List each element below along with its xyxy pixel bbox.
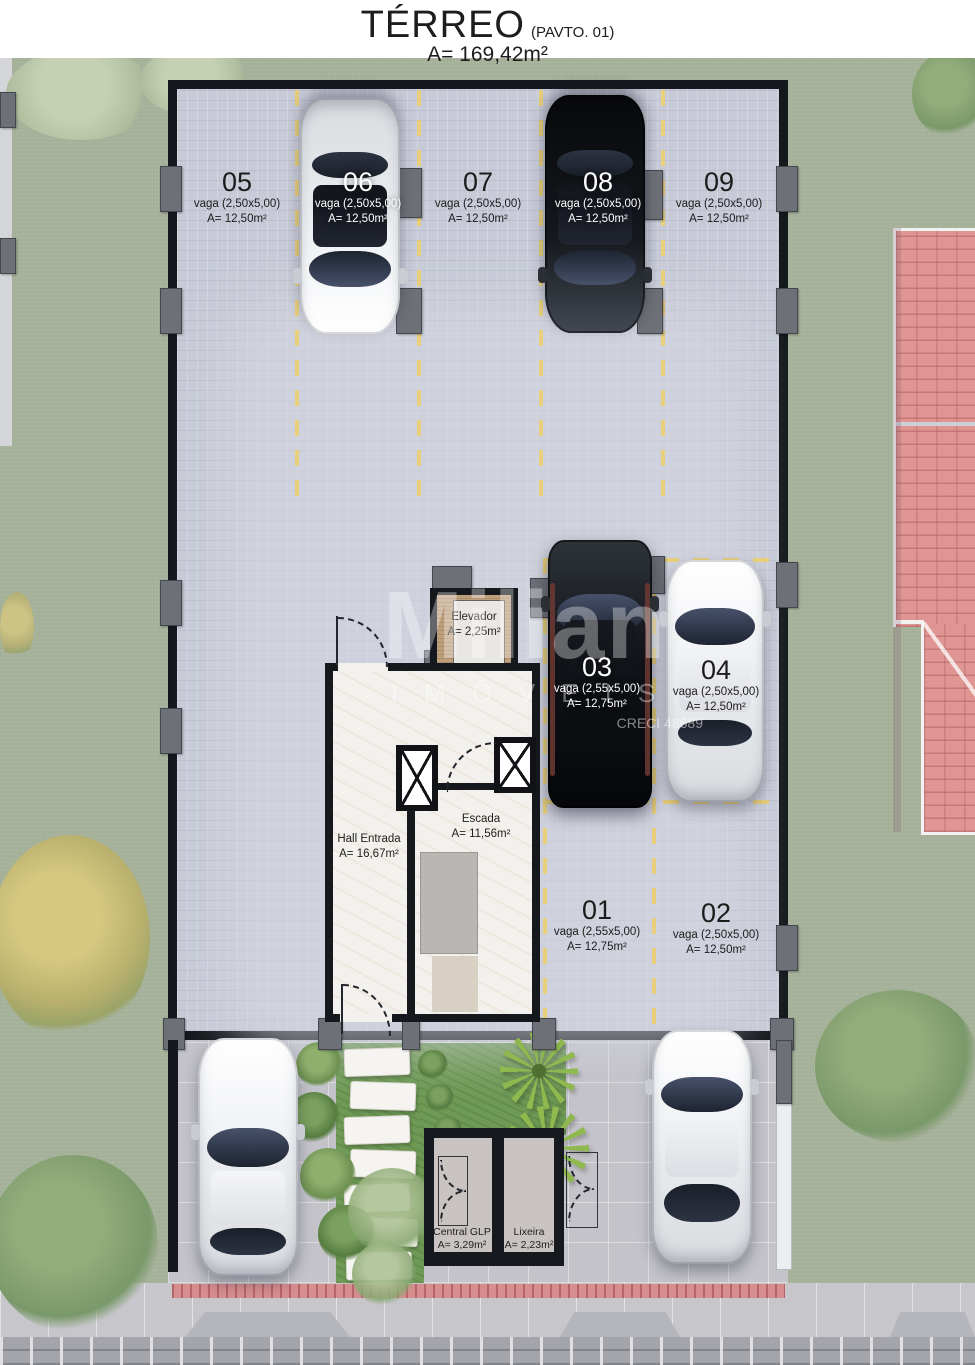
- parking-spot-label: 04 vaga (2,50x5,00) A= 12,50m²: [656, 655, 776, 715]
- car-mirror: [659, 611, 668, 627]
- room-name: Hall Entrada: [326, 832, 412, 847]
- curb-ramp: [560, 1312, 680, 1337]
- spot-area: A= 12,50m²: [538, 212, 658, 227]
- car-mirror: [541, 596, 550, 612]
- spot-dim: vaga (2,50x5,00): [538, 197, 658, 212]
- neighbor-roof-upper: [893, 228, 975, 627]
- lane-line: [295, 90, 299, 505]
- curb-ramp: [890, 1312, 975, 1337]
- x-line: [500, 743, 530, 787]
- spot-number: 02: [656, 898, 776, 928]
- spot-area: A= 12,50m²: [177, 212, 297, 227]
- lane-line: [539, 90, 543, 505]
- spot-area: A= 12,50m²: [659, 212, 779, 227]
- lixeira-label: Lixeira A= 2,23m²: [500, 1226, 558, 1252]
- garden-bush: [300, 1148, 356, 1204]
- stair-void: [420, 852, 478, 954]
- garden-bush: [426, 1084, 454, 1112]
- roof-eave-shadow: [893, 228, 901, 832]
- spot-dim: vaga (2,50x5,00): [298, 197, 418, 212]
- page-title: TÉRREO: [361, 4, 525, 46]
- hall-label: Hall Entrada A= 16,67m²: [326, 832, 412, 862]
- spot-number: 08: [538, 167, 658, 197]
- cobblestone-street: [0, 1337, 975, 1365]
- stepping-stone: [344, 1115, 411, 1145]
- garden-bush: [418, 1050, 448, 1080]
- room-area: A= 11,56m²: [438, 827, 524, 842]
- parking-spot-label: 06 vaga (2,50x5,00) A= 12,50m²: [298, 167, 418, 227]
- parking-spot-label: 03 vaga (2,55x5,00) A= 12,75m²: [545, 652, 649, 712]
- plan-header: TÉRREO(PAVTO. 01) A= 169,42m²: [0, 0, 975, 58]
- spot-dim: vaga (2,50x5,00): [656, 685, 776, 700]
- spot-area: A= 12,50m²: [656, 943, 776, 958]
- spot-dim: vaga (2,50x5,00): [418, 197, 538, 212]
- car-mirror: [293, 268, 302, 284]
- roof-ridge-line: [896, 422, 975, 426]
- car-windshield: [661, 1077, 743, 1112]
- x-line: [402, 751, 432, 805]
- car-rear-window: [664, 1184, 740, 1221]
- elevator-label: Elevador A= 2,25m²: [424, 610, 524, 640]
- parking-spot-label: 01 vaga (2,55x5,00) A= 12,75m²: [545, 895, 649, 955]
- car-mirror: [643, 267, 652, 283]
- car-front-yard-right: [652, 1030, 752, 1264]
- front-wall-column: [532, 1018, 556, 1050]
- bottom-right-bush: [815, 990, 975, 1142]
- spot-area: A= 12,50m²: [418, 212, 538, 227]
- car-mirror: [191, 1124, 200, 1140]
- parking-spot-label: 08 vaga (2,50x5,00) A= 12,50m²: [538, 167, 658, 227]
- room-name: Escada: [438, 812, 524, 827]
- car-windshield: [675, 608, 755, 644]
- spot-number: 05: [177, 167, 297, 197]
- spot-dim: vaga (2,55x5,00): [545, 925, 649, 940]
- spot-dim: vaga (2,55x5,00): [545, 682, 649, 697]
- car-mirror: [750, 1079, 759, 1095]
- wall-column: [776, 288, 798, 334]
- wall-column: [160, 288, 182, 334]
- spot-area: A= 12,50m²: [298, 212, 418, 227]
- spot-dim: vaga (2,50x5,00): [656, 928, 776, 943]
- spot-area: A= 12,50m²: [656, 700, 776, 715]
- garden-bush: [352, 1242, 416, 1306]
- red-paver-strip: [172, 1284, 785, 1298]
- car-mirror: [645, 1079, 654, 1095]
- car-mirror: [538, 267, 547, 283]
- car-mirror: [398, 268, 407, 284]
- wall-column: [160, 708, 182, 754]
- spot-area: A= 12,75m²: [545, 940, 649, 955]
- room-area: A= 2,23m²: [500, 1239, 558, 1252]
- parking-spot-label: 09 vaga (2,50x5,00) A= 12,50m²: [659, 167, 779, 227]
- spot-number: 07: [418, 167, 538, 197]
- structural-column-x: [396, 745, 438, 811]
- car-rear-window: [210, 1228, 286, 1254]
- glp-label: Central GLP A= 3,29m²: [428, 1226, 496, 1252]
- car-roof: [211, 1171, 285, 1223]
- yard-right-panel: [776, 1102, 792, 1270]
- lane-line: [652, 558, 656, 1032]
- room-name: Central GLP: [428, 1226, 496, 1239]
- yard-left-wall: [168, 1040, 178, 1272]
- stair-landing: [432, 956, 478, 1012]
- car-front-yard-left: [198, 1038, 298, 1276]
- wall-column: [160, 580, 182, 626]
- total-area: A= 169,42m²: [0, 43, 975, 67]
- spot-dim: vaga (2,50x5,00): [177, 197, 297, 212]
- floor-plan: Elevador A= 2,25m² Hall Entrada A= 16,67…: [0, 0, 975, 1365]
- stairs-label: Escada A= 11,56m²: [438, 812, 524, 842]
- spot-number: 04: [656, 655, 776, 685]
- wall-column: [776, 166, 798, 212]
- elevator-column: [432, 566, 472, 590]
- wall-column: [776, 562, 798, 608]
- car-mirror: [296, 1124, 305, 1140]
- car-mirror: [762, 611, 771, 627]
- room-area: A= 2,25m²: [424, 625, 524, 640]
- car-roof: [665, 1117, 739, 1178]
- yard-right-wall: [776, 1040, 792, 1104]
- stepping-stone: [344, 1047, 411, 1077]
- car-mirror: [650, 596, 659, 612]
- lane-line: [543, 558, 547, 1032]
- wall-column: [776, 925, 798, 971]
- car-windshield: [309, 251, 391, 286]
- spot-number: 03: [545, 652, 649, 682]
- parking-spot-label: 07 vaga (2,50x5,00) A= 12,50m²: [418, 167, 538, 227]
- curb-ramp: [185, 1312, 350, 1337]
- yellow-flowers: [0, 592, 34, 662]
- left-neighbor-column: [0, 238, 16, 274]
- stepping-stone: [350, 1081, 417, 1111]
- spot-number: 06: [298, 167, 418, 197]
- room-area: A= 16,67m²: [326, 847, 412, 862]
- car-rear-window: [678, 720, 753, 747]
- car-windshield: [207, 1128, 289, 1166]
- page-subtitle: (PAVTO. 01): [531, 24, 614, 41]
- car-windshield: [554, 250, 636, 286]
- spot-number: 09: [659, 167, 779, 197]
- spot-dim: vaga (2,50x5,00): [659, 197, 779, 212]
- spot-area: A= 12,75m²: [545, 697, 649, 712]
- structural-column-x: [494, 737, 536, 793]
- room-area: A= 3,29m²: [428, 1239, 496, 1252]
- parking-spot-label: 05 vaga (2,50x5,00) A= 12,50m²: [177, 167, 297, 227]
- parking-spot-label: 02 vaga (2,50x5,00) A= 12,50m²: [656, 898, 776, 958]
- room-name: Lixeira: [500, 1226, 558, 1239]
- spot-number: 01: [545, 895, 649, 925]
- room-name: Elevador: [424, 610, 524, 625]
- left-neighbor-column: [0, 92, 16, 128]
- front-wall-column: [318, 1018, 342, 1050]
- front-wall-column: [402, 1020, 420, 1050]
